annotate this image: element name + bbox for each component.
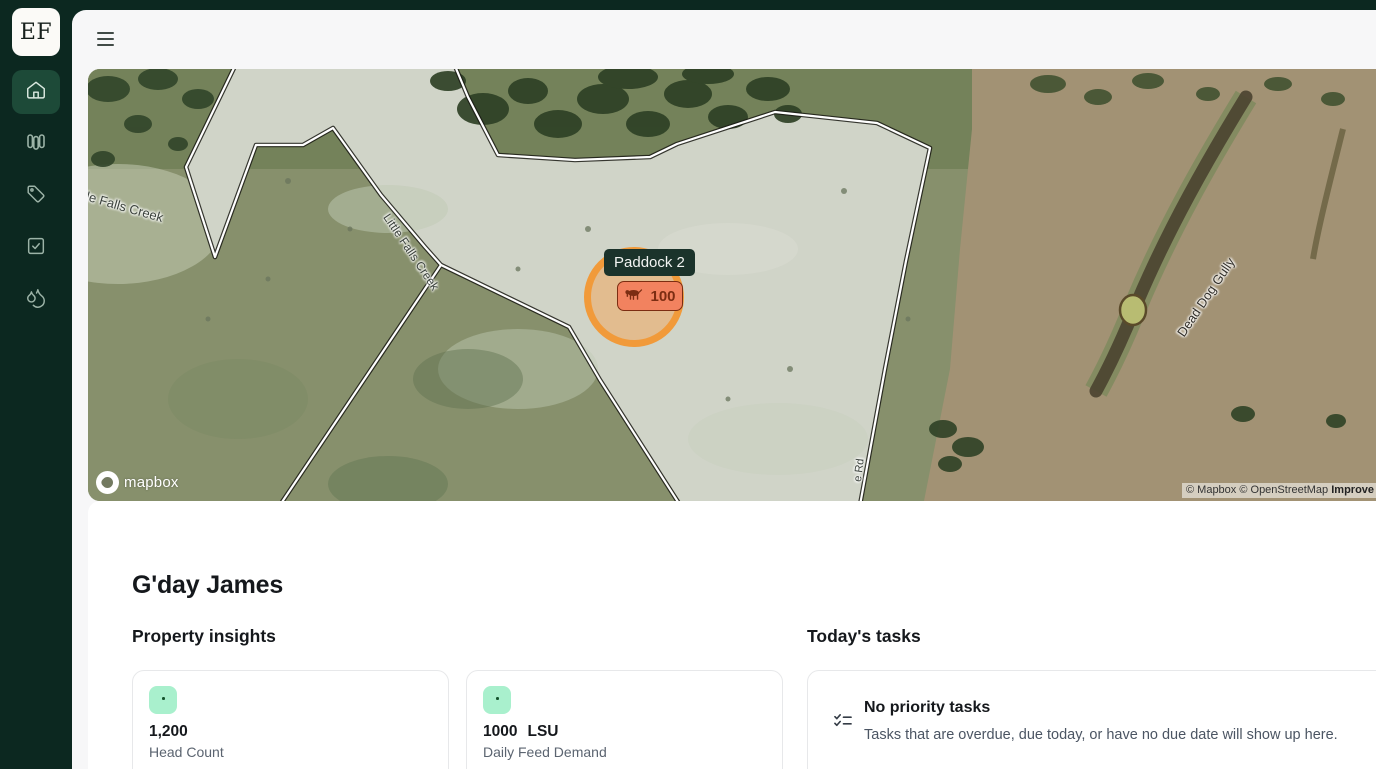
checklist-icon bbox=[834, 699, 852, 769]
attribution-improve-link[interactable]: Improve this map bbox=[1331, 484, 1376, 496]
main-content: Little Falls Creek Little Falls Creek De… bbox=[72, 10, 1376, 769]
livestock-count: 100 bbox=[650, 288, 675, 305]
property-map[interactable]: Little Falls Creek Little Falls Creek De… bbox=[88, 69, 1376, 501]
insight-label: Head Count bbox=[149, 744, 432, 760]
topbar bbox=[72, 10, 1376, 69]
insight-card-head-count[interactable]: 1,200 Head Count bbox=[132, 670, 449, 769]
insight-value: 1,200 bbox=[149, 723, 188, 741]
dashboard-panel: G'day James Property insights 1,200 Head… bbox=[88, 501, 1376, 769]
attribution-copyright[interactable]: © Mapbox © OpenStreetMap bbox=[1186, 484, 1331, 496]
sidebar-item-home[interactable] bbox=[12, 70, 60, 114]
sidebar-item-paddocks[interactable] bbox=[12, 122, 60, 166]
sidebar-item-water[interactable] bbox=[12, 278, 60, 322]
sidebar-item-tasks[interactable] bbox=[12, 226, 60, 270]
satellite-map-image bbox=[88, 69, 1376, 501]
mapbox-logo[interactable]: mapbox bbox=[96, 471, 179, 494]
insight-unit: LSU bbox=[527, 723, 558, 741]
tasks-empty-state-card: No priority tasks Tasks that are overdue… bbox=[807, 670, 1376, 769]
check-square-icon bbox=[25, 235, 47, 262]
mapbox-icon bbox=[96, 471, 119, 494]
home-icon bbox=[25, 79, 47, 106]
insight-value: 1000 bbox=[483, 723, 517, 741]
sidebar-item-tags[interactable] bbox=[12, 174, 60, 218]
droplets-icon bbox=[25, 287, 47, 314]
greeting-heading: G'day James bbox=[132, 571, 1376, 600]
tasks-empty-title: No priority tasks bbox=[864, 699, 1338, 717]
tag-icon bbox=[25, 183, 47, 210]
insight-icon bbox=[483, 686, 511, 714]
property-insights-heading: Property insights bbox=[132, 626, 783, 647]
paddock-tooltip-title: Paddock 2 bbox=[614, 254, 685, 271]
insight-card-feed-demand[interactable]: 1000 LSU Daily Feed Demand bbox=[466, 670, 783, 769]
insight-icon bbox=[149, 686, 177, 714]
map-attribution: © Mapbox © OpenStreetMap Improve this ma… bbox=[1182, 483, 1376, 498]
todays-tasks-heading: Today's tasks bbox=[807, 626, 1376, 647]
paddock-tooltip: Paddock 2 bbox=[604, 249, 695, 276]
tasks-empty-description: Tasks that are overdue, due today, or ha… bbox=[864, 727, 1338, 743]
livestock-count-badge[interactable]: 100 bbox=[617, 281, 683, 311]
menu-toggle-button[interactable] bbox=[97, 32, 114, 46]
cattle-icon bbox=[624, 288, 643, 305]
app-logo[interactable]: EF bbox=[12, 8, 60, 56]
sidebar: EF bbox=[0, 0, 72, 769]
paddocks-icon bbox=[25, 131, 47, 158]
insight-label: Daily Feed Demand bbox=[483, 744, 766, 760]
